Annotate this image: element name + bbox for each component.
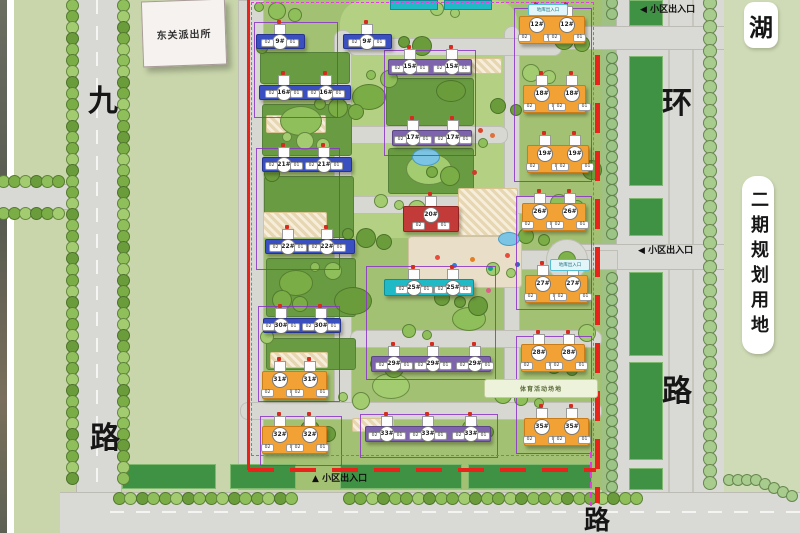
roof-marker: [539, 404, 543, 408]
tree-canopy: [436, 80, 466, 102]
entrance-east: ◀ 小区出入口: [638, 243, 693, 256]
roof-marker: [391, 342, 395, 346]
tree: [468, 296, 488, 316]
building-badge: 12#: [529, 17, 545, 33]
tree: [285, 492, 298, 505]
garage-entrance-label: 地库出入口: [559, 262, 582, 268]
roof-marker: [410, 116, 414, 120]
tree: [376, 234, 392, 250]
roof-marker: [307, 412, 311, 416]
roof-marker: [277, 357, 281, 361]
unit-pill: 02: [261, 389, 274, 397]
roof-marker: [321, 143, 325, 147]
unit-pill: 01: [576, 221, 589, 229]
building-badge: 35#: [564, 419, 580, 435]
sports-field-label: 体育活动场地: [520, 384, 562, 393]
tree: [324, 262, 342, 280]
roof-marker: [569, 71, 573, 75]
unit-pill: 01: [578, 103, 591, 111]
unit-pill: 02: [452, 432, 465, 440]
road-median: [122, 464, 216, 489]
unit-pill: 02: [521, 221, 534, 229]
tree: [356, 228, 376, 248]
building-badge: 19#: [537, 146, 553, 162]
tree: [288, 8, 302, 22]
entrance-label: 小区出入口: [650, 5, 695, 15]
plaza-dot: [505, 253, 510, 258]
building-badge: 26#: [562, 204, 578, 220]
unit-pill: 02: [433, 65, 446, 73]
hatched-paving: [263, 212, 327, 238]
boundary-red-west: [247, 0, 250, 470]
tree: [538, 234, 550, 246]
tree: [254, 2, 264, 12]
unit-pill: 02: [434, 286, 447, 294]
building-badge: 19#: [567, 146, 583, 162]
roof-marker: [323, 71, 327, 75]
roof-marker: [285, 225, 289, 229]
tree: [426, 166, 438, 178]
unit-pill: 02: [305, 162, 318, 170]
tree: [310, 262, 320, 272]
entrance-arrow-icon: ◀: [638, 246, 645, 256]
tree: [272, 290, 292, 310]
unit-pill: 01: [327, 323, 340, 331]
tree: [703, 476, 717, 490]
unit-pill: 01: [294, 244, 307, 252]
unit-pill: 01: [481, 362, 494, 370]
garage-entrance-north: 地库出入口: [528, 4, 568, 16]
roof-marker: [324, 225, 328, 229]
roof-marker: [307, 357, 311, 361]
phase2-label: 二期规划用地: [745, 190, 771, 340]
unit-pill: 02: [550, 362, 563, 370]
unit-pill: 02: [348, 39, 361, 47]
phase2-panel: 二期规划用地: [742, 176, 774, 354]
unit-pill: 02: [524, 293, 537, 301]
unit-pill: 02: [308, 244, 321, 252]
entrance-label: 小区出入口: [322, 474, 367, 484]
unit-pill: 01: [458, 65, 471, 73]
building-badge: 27#: [565, 276, 581, 292]
unit-pill: 02: [548, 34, 561, 42]
unit-pill: 01: [290, 162, 303, 170]
unit-pill: 02: [375, 362, 388, 370]
unit-pill: 01: [420, 286, 433, 294]
road-median: [629, 272, 663, 356]
plaza-dot: [472, 170, 477, 175]
roof-marker: [318, 304, 322, 308]
tree: [402, 324, 416, 338]
plaza-dot: [486, 288, 491, 293]
garage-entrance-east: 地库出入口: [550, 259, 590, 271]
east-road-label-char2: 路: [662, 366, 692, 410]
building-badge: 28#: [531, 345, 547, 361]
unit-pill: 02: [434, 136, 447, 144]
pond: [412, 148, 440, 166]
master-plan-map: 9#02019#020116#020116#020121#020121#0201…: [0, 0, 800, 533]
unit-pill: 01: [573, 34, 586, 42]
roof-marker: [536, 330, 540, 334]
unit-pill: 01: [333, 244, 346, 252]
unit-pill: 01: [434, 432, 447, 440]
unit-pill: 02: [523, 436, 536, 444]
roof-marker: [407, 45, 411, 49]
tree: [578, 324, 596, 342]
building-badge: 35#: [534, 419, 550, 435]
building-badge: 32#: [302, 427, 318, 443]
roof-marker: [281, 71, 285, 75]
roof-marker: [542, 131, 546, 135]
south-road-label: 路: [584, 500, 610, 533]
tree: [422, 330, 432, 340]
unit-pill: 01: [459, 136, 472, 144]
unit-pill: 02: [307, 90, 320, 98]
roof-marker: [450, 116, 454, 120]
boundary-magenta-seg: [590, 452, 592, 506]
building-badge: 18#: [534, 86, 550, 102]
unit-pill: 02: [556, 163, 569, 171]
unit-pill: 02: [409, 432, 422, 440]
boundary-red-south-dashed: [248, 468, 596, 472]
tree: [282, 132, 292, 142]
unit-pill: 01: [287, 323, 300, 331]
unit-pill: 01: [439, 362, 452, 370]
unit-pill: 02: [262, 323, 275, 331]
roof-marker: [278, 304, 282, 308]
unit-pill: 02: [554, 293, 567, 301]
unit-pill: 01: [575, 362, 588, 370]
tree: [292, 296, 308, 312]
unit-pill: 02: [269, 244, 282, 252]
tree: [506, 268, 516, 278]
unit-pill: 01: [416, 65, 429, 73]
unit-pill: 02: [456, 362, 469, 370]
tree: [117, 472, 130, 485]
unit-pill: 02: [553, 103, 566, 111]
unit-pill: 01: [400, 362, 413, 370]
tree: [374, 194, 388, 208]
roof-marker: [449, 45, 453, 49]
roof-marker: [569, 404, 573, 408]
plaza-dot: [478, 128, 483, 133]
tree: [630, 492, 643, 505]
tree: [328, 98, 348, 118]
roof-marker: [277, 412, 281, 416]
unit-pill: 01: [477, 432, 490, 440]
roof-marker: [428, 192, 432, 196]
unit-pill: 02: [291, 444, 304, 452]
entrance-north: ◀ 小区出入口: [640, 2, 695, 15]
building-badge: 12#: [559, 17, 575, 33]
lake-label: 湖: [749, 8, 773, 43]
unit-pill: 02: [265, 90, 278, 98]
tree: [338, 392, 348, 402]
tree: [352, 392, 370, 410]
unit-pill: 01: [316, 444, 329, 452]
tree: [454, 296, 466, 308]
building-badge: 31#: [272, 372, 288, 388]
entrance-arrow-icon: ◀: [640, 5, 647, 15]
tree: [606, 228, 618, 240]
roof-marker: [539, 71, 543, 75]
pond: [498, 232, 520, 246]
west-road-label-char2: 路: [90, 413, 120, 457]
roof-marker: [566, 330, 570, 334]
hatched-paving: [458, 188, 518, 236]
tree: [490, 98, 506, 114]
plaza-dot: [488, 266, 493, 271]
unit-pill: 02: [553, 436, 566, 444]
tree: [440, 166, 460, 186]
roof-marker: [277, 20, 281, 24]
boundary-red-east-dashed: [595, 55, 600, 503]
unit-pill: 01: [373, 39, 386, 47]
garage-entrance-label: 地库出入口: [537, 7, 560, 13]
building-badge: 27#: [535, 276, 551, 292]
tree: [366, 70, 376, 80]
building-stub: [390, 0, 438, 10]
tree-canopy: [334, 287, 372, 315]
unit-pill: 01: [581, 163, 594, 171]
police-station-building: 东关派出所: [141, 0, 227, 67]
entrance-arrow-icon: ▲: [312, 474, 319, 484]
unit-pill: 02: [391, 65, 404, 73]
unit-pill: 01: [330, 162, 343, 170]
building-badge: 18#: [564, 86, 580, 102]
unit-pill: 02: [394, 136, 407, 144]
tree: [478, 138, 488, 148]
road-median: [629, 56, 663, 186]
unit-pill: 02: [526, 163, 539, 171]
plaza-dot: [435, 255, 440, 260]
roof-marker: [567, 189, 571, 193]
tree: [296, 132, 314, 150]
unit-pill: 01: [437, 222, 450, 230]
unit-pill: 02: [261, 444, 274, 452]
unit-pill: 01: [290, 90, 303, 98]
plaza-dot: [515, 262, 520, 267]
roof-marker: [472, 342, 476, 346]
sports-field-band: 体育活动场地: [484, 379, 598, 398]
roof-marker: [468, 412, 472, 416]
roof-marker: [281, 143, 285, 147]
unit-pill: 02: [302, 323, 315, 331]
entrance-south: ▲ 小区出入口: [312, 471, 367, 484]
unit-pill: 01: [286, 39, 299, 47]
roof-marker: [425, 412, 429, 416]
roof-marker: [572, 131, 576, 135]
unit-pill: 01: [316, 389, 329, 397]
roof-marker: [540, 261, 544, 265]
tree: [786, 490, 798, 502]
building-badge: 32#: [272, 427, 288, 443]
tree: [606, 8, 618, 20]
unit-pill: 02: [520, 362, 533, 370]
unit-pill: 01: [393, 432, 406, 440]
tree: [348, 104, 364, 120]
police-station-label: 东关派出所: [156, 25, 211, 42]
unit-pill: 02: [291, 389, 304, 397]
tree: [510, 104, 522, 116]
unit-pill: 02: [523, 103, 536, 111]
building-badge: 28#: [561, 345, 577, 361]
unit-pill: 01: [578, 436, 591, 444]
tree: [66, 472, 79, 485]
building-badge: 20#: [423, 207, 439, 223]
unit-pill: 02: [368, 432, 381, 440]
unit-pill: 02: [265, 162, 278, 170]
roof-marker: [450, 265, 454, 269]
garden-lawn: [260, 52, 350, 84]
plaza-dot: [490, 133, 495, 138]
unit-pill: 01: [579, 293, 592, 301]
roof-marker: [411, 265, 415, 269]
tree: [52, 175, 65, 188]
building-stub: [444, 0, 492, 10]
roof-marker: [430, 342, 434, 346]
lake-label-box: 湖: [744, 2, 778, 48]
unit-pill: 02: [395, 286, 408, 294]
unit-pill: 02: [261, 39, 274, 47]
building-badge: 31#: [302, 372, 318, 388]
unit-pill: 02: [518, 34, 531, 42]
unit-pill: 02: [551, 221, 564, 229]
entrance-label: 小区出入口: [648, 246, 693, 256]
east-road-label-char1: 环: [662, 78, 692, 122]
road-median: [629, 198, 663, 236]
roof-marker: [384, 412, 388, 416]
road-median: [629, 362, 663, 460]
unit-pill: 02: [414, 362, 427, 370]
plaza-dot: [470, 257, 475, 262]
building-badge: 26#: [532, 204, 548, 220]
west-road-label-char1: 九: [88, 76, 118, 120]
unit-pill: 01: [419, 136, 432, 144]
tree: [268, 2, 286, 20]
unit-pill: 02: [412, 222, 425, 230]
road-median: [629, 468, 663, 490]
roof-marker: [364, 20, 368, 24]
tree: [52, 207, 65, 220]
unit-pill: 01: [332, 90, 345, 98]
roof-marker: [537, 189, 541, 193]
unit-pill: 01: [459, 286, 472, 294]
